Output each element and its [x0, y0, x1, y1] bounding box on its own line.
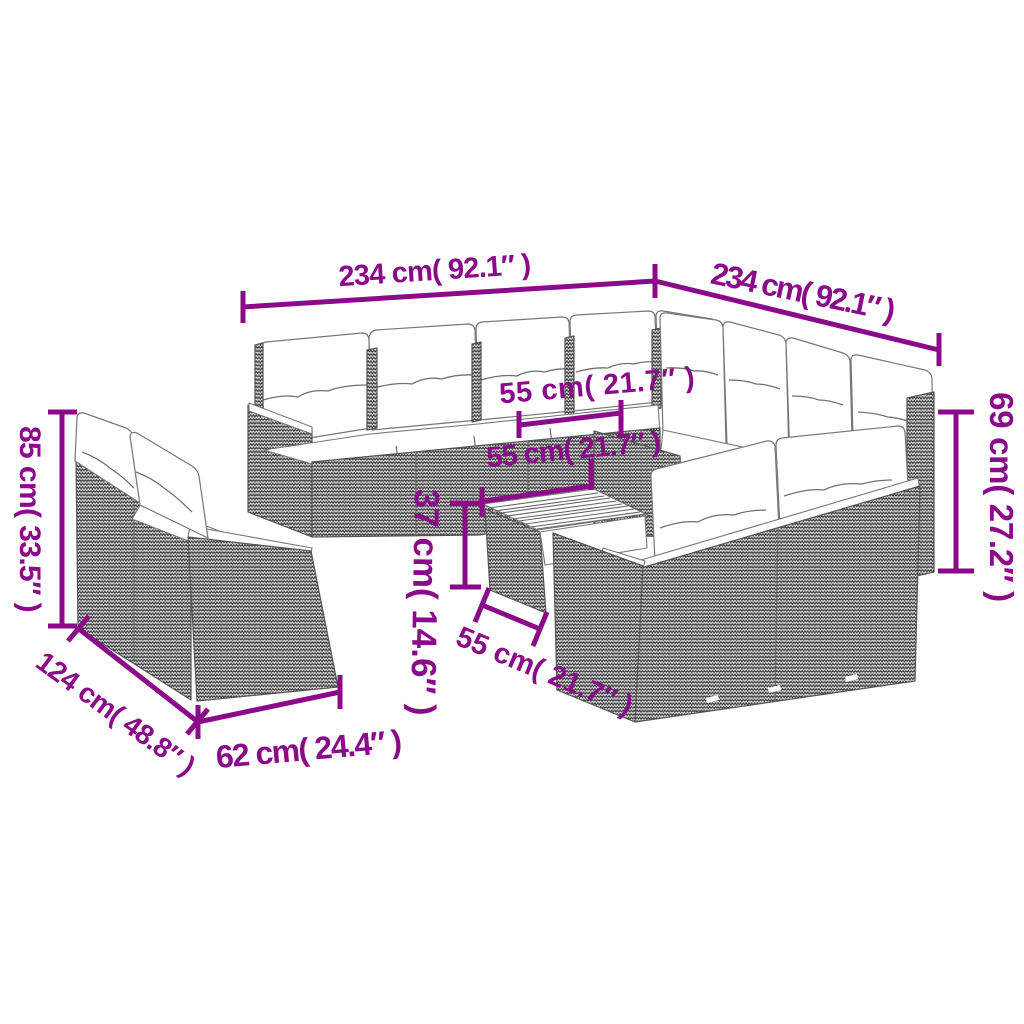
svg-text:85 cm( 33.5″ ): 85 cm( 33.5″ )	[13, 426, 46, 612]
svg-text:69 cm( 27.2″ ): 69 cm( 27.2″ )	[983, 392, 1020, 602]
svg-text:37 cm( 14.6″ ): 37 cm( 14.6″ )	[403, 488, 446, 716]
